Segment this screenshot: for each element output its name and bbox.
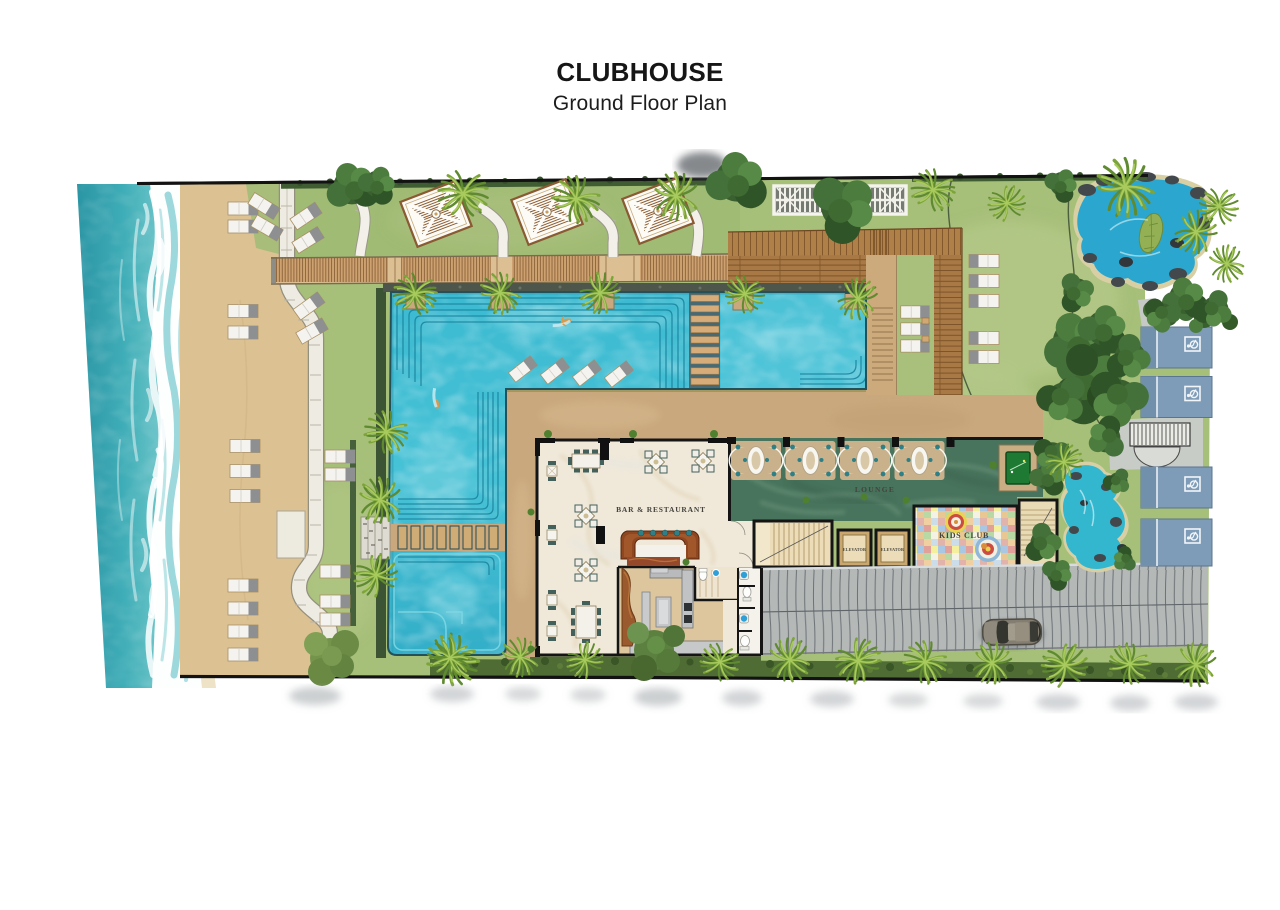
svg-text:BAR & RESTAURANT: BAR & RESTAURANT: [616, 505, 706, 514]
svg-text:CLUBHOUSE: CLUBHOUSE: [556, 57, 723, 87]
svg-text:KIDS CLUB: KIDS CLUB: [939, 531, 989, 540]
svg-text:Ground Floor Plan: Ground Floor Plan: [553, 92, 727, 115]
svg-text:ELEVATOR: ELEVATOR: [881, 547, 904, 552]
svg-text:ELEVATOR: ELEVATOR: [843, 547, 866, 552]
svg-text:LOUNGE: LOUNGE: [855, 485, 895, 494]
